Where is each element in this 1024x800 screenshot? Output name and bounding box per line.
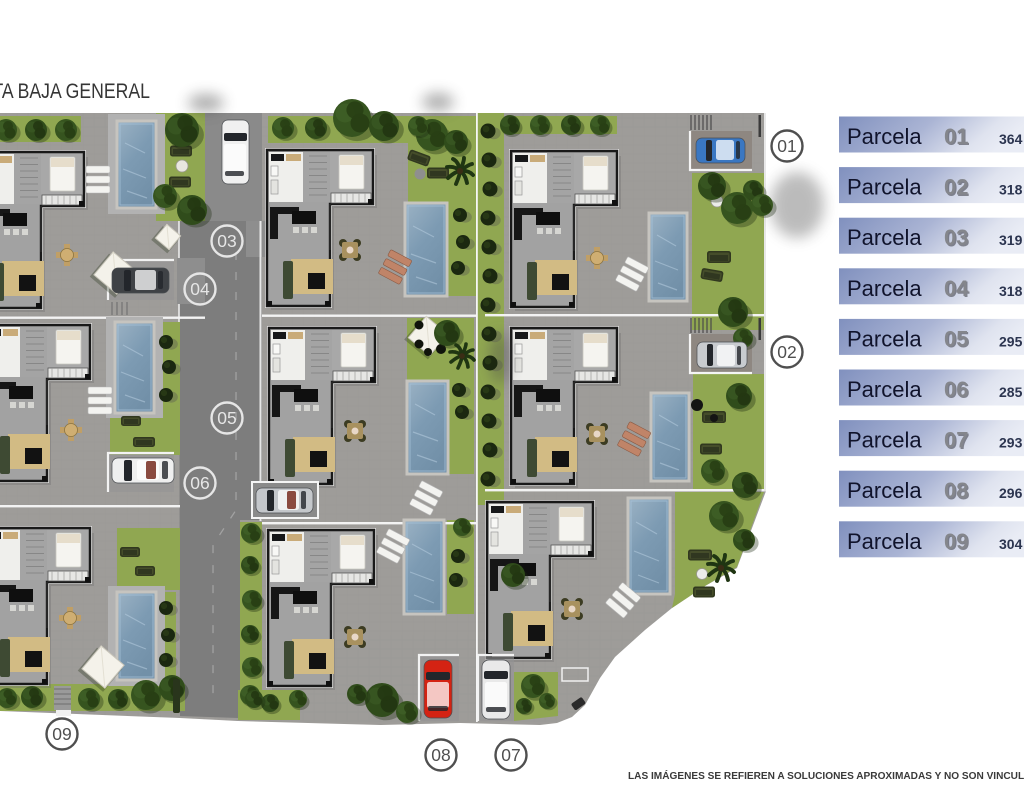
svg-text:Parcela: Parcela	[847, 377, 922, 402]
svg-text:03: 03	[217, 231, 236, 251]
svg-text:293 m: 293 m	[999, 435, 1024, 451]
svg-text:08: 08	[944, 478, 968, 503]
svg-text:02: 02	[944, 175, 968, 200]
svg-text:04: 04	[944, 276, 969, 301]
svg-text:Parcela: Parcela	[847, 529, 922, 554]
svg-text:319 m: 319 m	[999, 232, 1024, 248]
svg-text:05: 05	[944, 326, 968, 351]
svg-text:09: 09	[52, 724, 71, 744]
svg-text:01: 01	[777, 136, 796, 156]
svg-text:Parcela: Parcela	[847, 326, 922, 351]
svg-text:05: 05	[217, 408, 236, 428]
svg-text:06: 06	[944, 377, 968, 402]
svg-text:285 m: 285 m	[999, 384, 1024, 400]
svg-text:02: 02	[777, 342, 796, 362]
svg-text:01: 01	[944, 124, 968, 149]
svg-text:364 m: 364 m	[999, 131, 1024, 147]
svg-text:07: 07	[944, 428, 968, 453]
svg-text:Parcela: Parcela	[847, 428, 922, 453]
svg-text:09: 09	[944, 529, 968, 554]
svg-text:296 m: 296 m	[999, 485, 1024, 501]
svg-text:08: 08	[431, 745, 450, 765]
svg-text:295 m: 295 m	[999, 333, 1024, 349]
svg-text:Parcela: Parcela	[847, 276, 922, 301]
svg-text:Parcela: Parcela	[847, 478, 922, 503]
svg-text:Parcela: Parcela	[847, 124, 922, 149]
svg-text:318 m: 318 m	[999, 182, 1024, 198]
svg-text:LAS IMÁGENES SE REFIEREN A SOL: LAS IMÁGENES SE REFIEREN A SOLUCIONES AP…	[628, 769, 1024, 782]
svg-text:03: 03	[944, 225, 968, 250]
svg-text:304 m: 304 m	[999, 536, 1024, 552]
svg-text:PLANTA BAJA GENERAL: PLANTA BAJA GENERAL	[0, 80, 150, 103]
svg-text:06: 06	[190, 473, 209, 493]
svg-text:Parcela: Parcela	[847, 225, 922, 250]
svg-text:318 m: 318 m	[999, 283, 1024, 299]
svg-text:07: 07	[501, 745, 520, 765]
svg-text:04: 04	[190, 279, 210, 299]
svg-text:Parcela: Parcela	[847, 175, 922, 200]
